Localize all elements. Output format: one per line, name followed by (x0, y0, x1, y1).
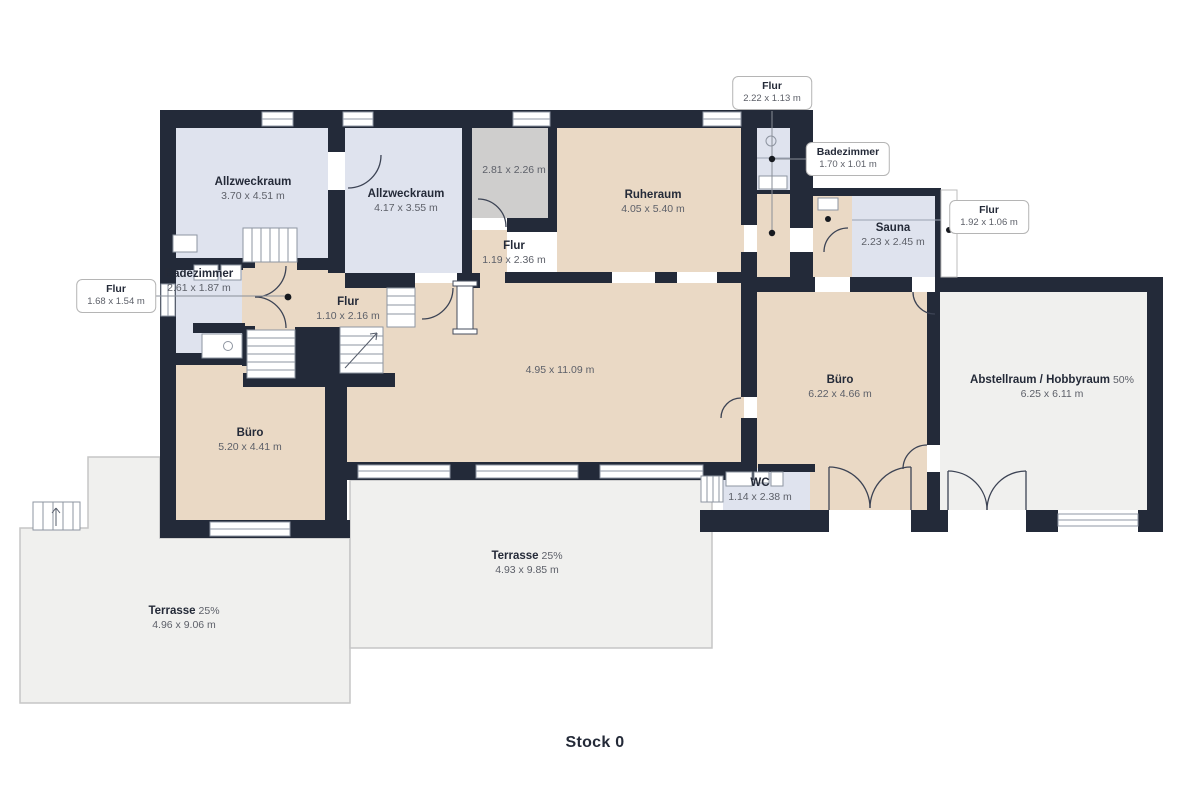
stairs (340, 327, 383, 373)
window (1058, 514, 1138, 526)
shower-fixture (202, 334, 242, 358)
callout-flur-right: Flur 1.92 x 1.06 m (949, 200, 1029, 234)
floor-title: Stock 0 (565, 734, 624, 752)
stairs (247, 330, 295, 378)
window (161, 284, 175, 316)
sink-fixture (194, 265, 218, 280)
wc-fixture (726, 472, 752, 486)
room-storage-small-floor (472, 128, 553, 218)
wc-fixture (759, 176, 787, 189)
callout-badezimmer-top: Badezimmer 1.70 x 1.01 m (806, 142, 890, 176)
window (476, 465, 578, 478)
window (703, 112, 741, 126)
stairs (387, 288, 415, 327)
stairs (243, 228, 297, 262)
window (600, 465, 703, 478)
window (262, 112, 293, 126)
window (513, 112, 550, 126)
callout-flur-left: Flur 1.68 x 1.54 m (76, 279, 156, 313)
floorplan-drawing (0, 0, 1200, 811)
wc-fixture (771, 472, 783, 486)
column (453, 281, 477, 334)
room-ruheraum-floor (557, 128, 744, 272)
room-allzweckraum-2-floor (345, 128, 462, 273)
wc-fixture (754, 472, 769, 483)
fixture (173, 235, 197, 252)
callout-flur-top: Flur 2.22 x 1.13 m (732, 76, 812, 110)
room-sauna-floor (852, 196, 941, 277)
stairs (33, 502, 80, 530)
floorplan: Allzweckraum 3.70 x 4.51 m Allzweckraum … (0, 0, 1200, 811)
stairs (701, 476, 723, 502)
window (358, 465, 450, 478)
window (343, 112, 373, 126)
fixture (818, 198, 838, 210)
terrace-center-floor (350, 480, 712, 648)
room-abstellraum-floor (940, 292, 1147, 510)
sink-fixture (221, 265, 241, 280)
window (210, 522, 290, 536)
